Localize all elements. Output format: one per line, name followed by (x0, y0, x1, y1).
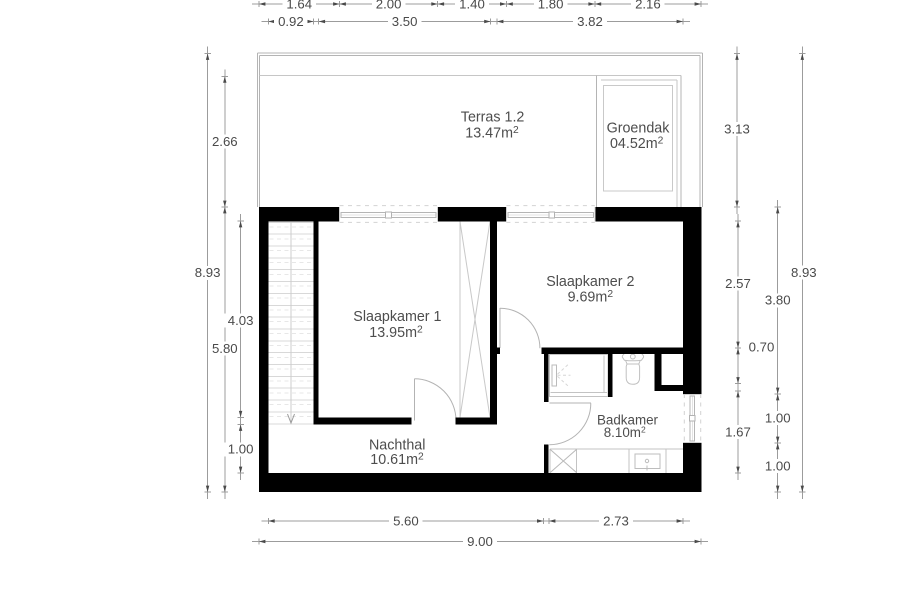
svg-text:2.57: 2.57 (725, 276, 751, 291)
svg-text:3.50: 3.50 (392, 14, 418, 29)
svg-text:3.82: 3.82 (577, 14, 603, 29)
svg-text:1.64: 1.64 (286, 0, 312, 11)
svg-text:1.00: 1.00 (765, 459, 791, 474)
svg-text:9.00: 9.00 (467, 534, 493, 549)
svg-text:2.73: 2.73 (603, 513, 629, 528)
svg-text:0.70: 0.70 (749, 339, 775, 354)
svg-text:3.80: 3.80 (765, 293, 791, 308)
svg-text:Terras 1.2: Terras 1.2 (461, 110, 525, 126)
svg-text:4.03: 4.03 (228, 313, 254, 328)
svg-text:2.16: 2.16 (635, 0, 661, 11)
svg-text:1.80: 1.80 (538, 0, 564, 11)
svg-text:3.13: 3.13 (724, 121, 750, 136)
svg-text:Nachthal: Nachthal (369, 437, 425, 453)
svg-text:1.40: 1.40 (459, 0, 485, 11)
svg-text:1.67: 1.67 (725, 424, 751, 439)
svg-text:8.93: 8.93 (791, 265, 817, 280)
svg-text:1.00: 1.00 (765, 411, 791, 426)
svg-text:Slaapkamer 2: Slaapkamer 2 (546, 274, 634, 290)
svg-text:Groendak: Groendak (607, 120, 671, 136)
svg-text:5.80: 5.80 (212, 341, 238, 356)
svg-text:10.61m2: 10.61m2 (370, 452, 424, 469)
svg-text:0.92: 0.92 (278, 14, 304, 29)
svg-text:2.00: 2.00 (376, 0, 402, 11)
svg-text:2.66: 2.66 (212, 134, 238, 149)
svg-text:13.47m2: 13.47m2 (465, 125, 519, 142)
svg-text:04.52m2: 04.52m2 (610, 135, 664, 152)
svg-text:8.10m2: 8.10m2 (604, 425, 646, 441)
svg-text:Slaapkamer 1: Slaapkamer 1 (353, 309, 441, 325)
svg-text:13.95m2: 13.95m2 (369, 324, 423, 341)
svg-text:8.93: 8.93 (195, 265, 221, 280)
svg-text:1.00: 1.00 (228, 442, 254, 457)
svg-text:5.60: 5.60 (393, 513, 419, 528)
svg-text:9.69m2: 9.69m2 (568, 289, 614, 306)
